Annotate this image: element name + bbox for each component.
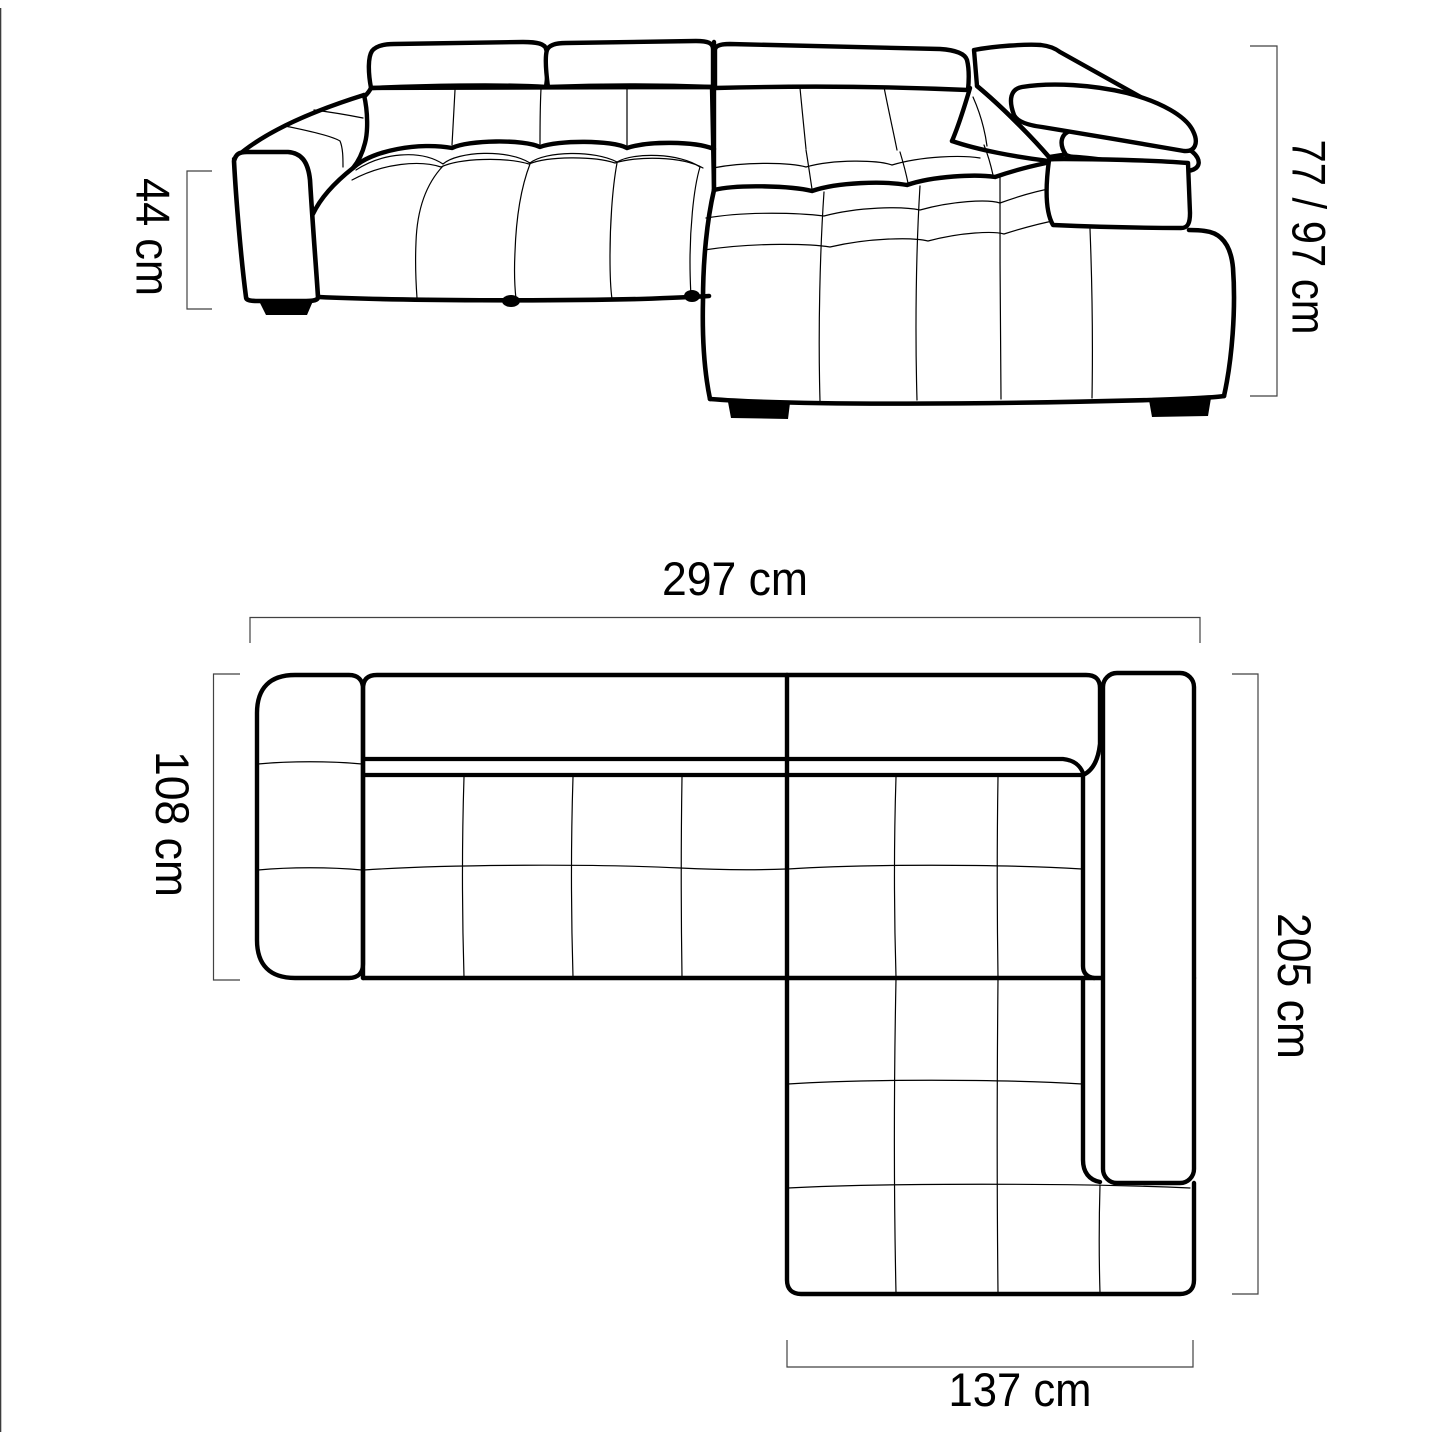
svg-text:137 cm: 137 cm xyxy=(949,1363,1092,1416)
svg-text:205 cm: 205 cm xyxy=(1268,913,1321,1059)
svg-text:297 cm: 297 cm xyxy=(662,552,808,605)
svg-text:108 cm: 108 cm xyxy=(146,751,199,897)
svg-text:44 cm: 44 cm xyxy=(127,178,180,296)
svg-text:77 / 97 cm: 77 / 97 cm xyxy=(1283,140,1336,335)
